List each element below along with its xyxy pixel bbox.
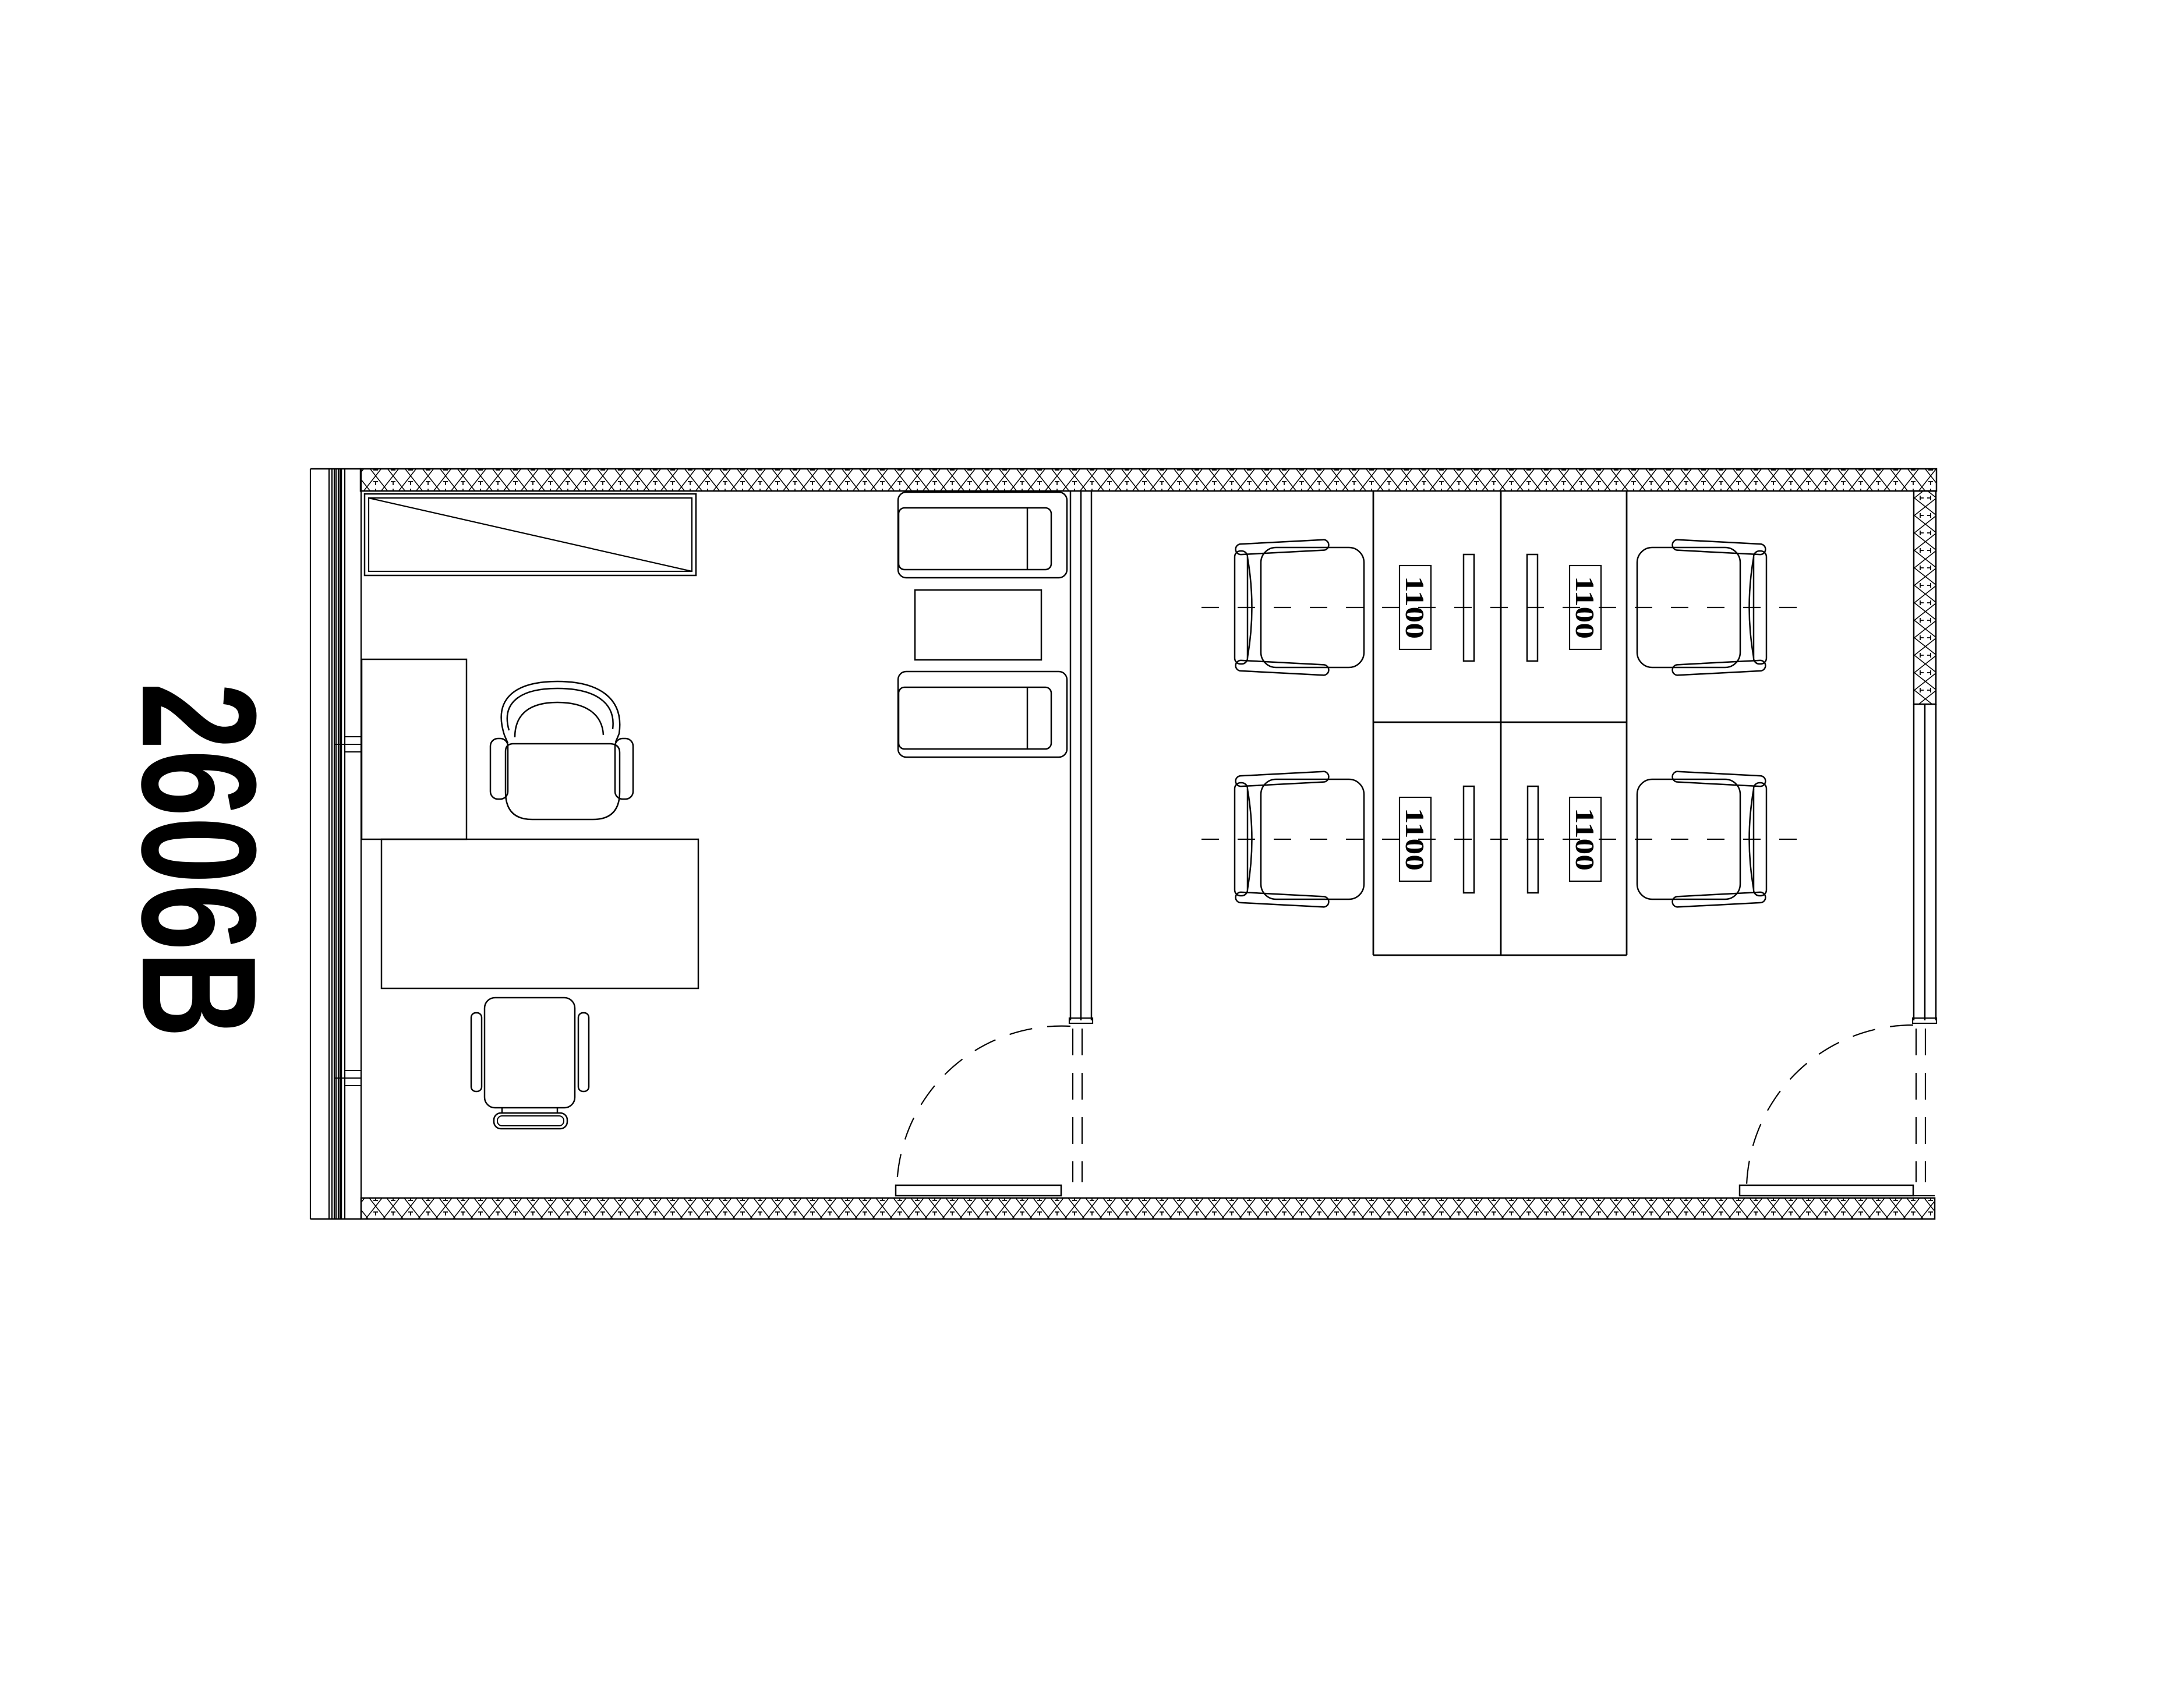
left-curtain-wall	[310, 469, 361, 1219]
entry-door-swing	[1747, 1025, 1913, 1185]
workstation-desks	[1373, 492, 1627, 955]
partition-door-closed-line	[1073, 1029, 1082, 1182]
desk-return	[362, 659, 467, 839]
room-label: 2606B	[108, 683, 289, 1038]
guest-chair	[471, 998, 589, 1129]
desk-dimension-label: 1100	[1570, 576, 1600, 639]
bottom-wall	[361, 1198, 1935, 1219]
lounge-chair-bottom	[898, 672, 1067, 757]
desk-dimension-tag-top-right: 1100	[1570, 566, 1601, 649]
desk-dimension-label: 1100	[1570, 808, 1600, 871]
desk-dimension-tag-bottom-left: 1100	[1400, 797, 1431, 881]
desk-dimension-label: 1100	[1400, 576, 1430, 639]
right-wall-solid	[1914, 491, 1936, 704]
glass-partition	[1069, 492, 1093, 1023]
partition-door-swing	[897, 1026, 1070, 1185]
entry-door-leaf	[1740, 1185, 1913, 1196]
partition-door-leaf	[896, 1185, 1061, 1196]
desk-dimension-tag-top-left: 1100	[1400, 566, 1431, 649]
partition-door	[896, 1026, 1082, 1196]
lounge-chair-top	[898, 492, 1067, 578]
top-wall	[361, 469, 1936, 491]
right-wall-window	[1913, 704, 1936, 1023]
entry-door	[1740, 1025, 1935, 1196]
executive-desk	[381, 839, 698, 988]
floor-plan-canvas: 1100 1100 1100 1100 2606B	[0, 0, 2184, 1689]
side-table	[915, 590, 1041, 660]
wall-cabinet	[365, 494, 696, 575]
entry-door-closed-line	[1916, 1029, 1925, 1182]
desk-dimension-tag-bottom-right: 1100	[1570, 797, 1601, 881]
desk-dimension-label: 1100	[1400, 808, 1430, 871]
executive-chair	[490, 681, 633, 819]
